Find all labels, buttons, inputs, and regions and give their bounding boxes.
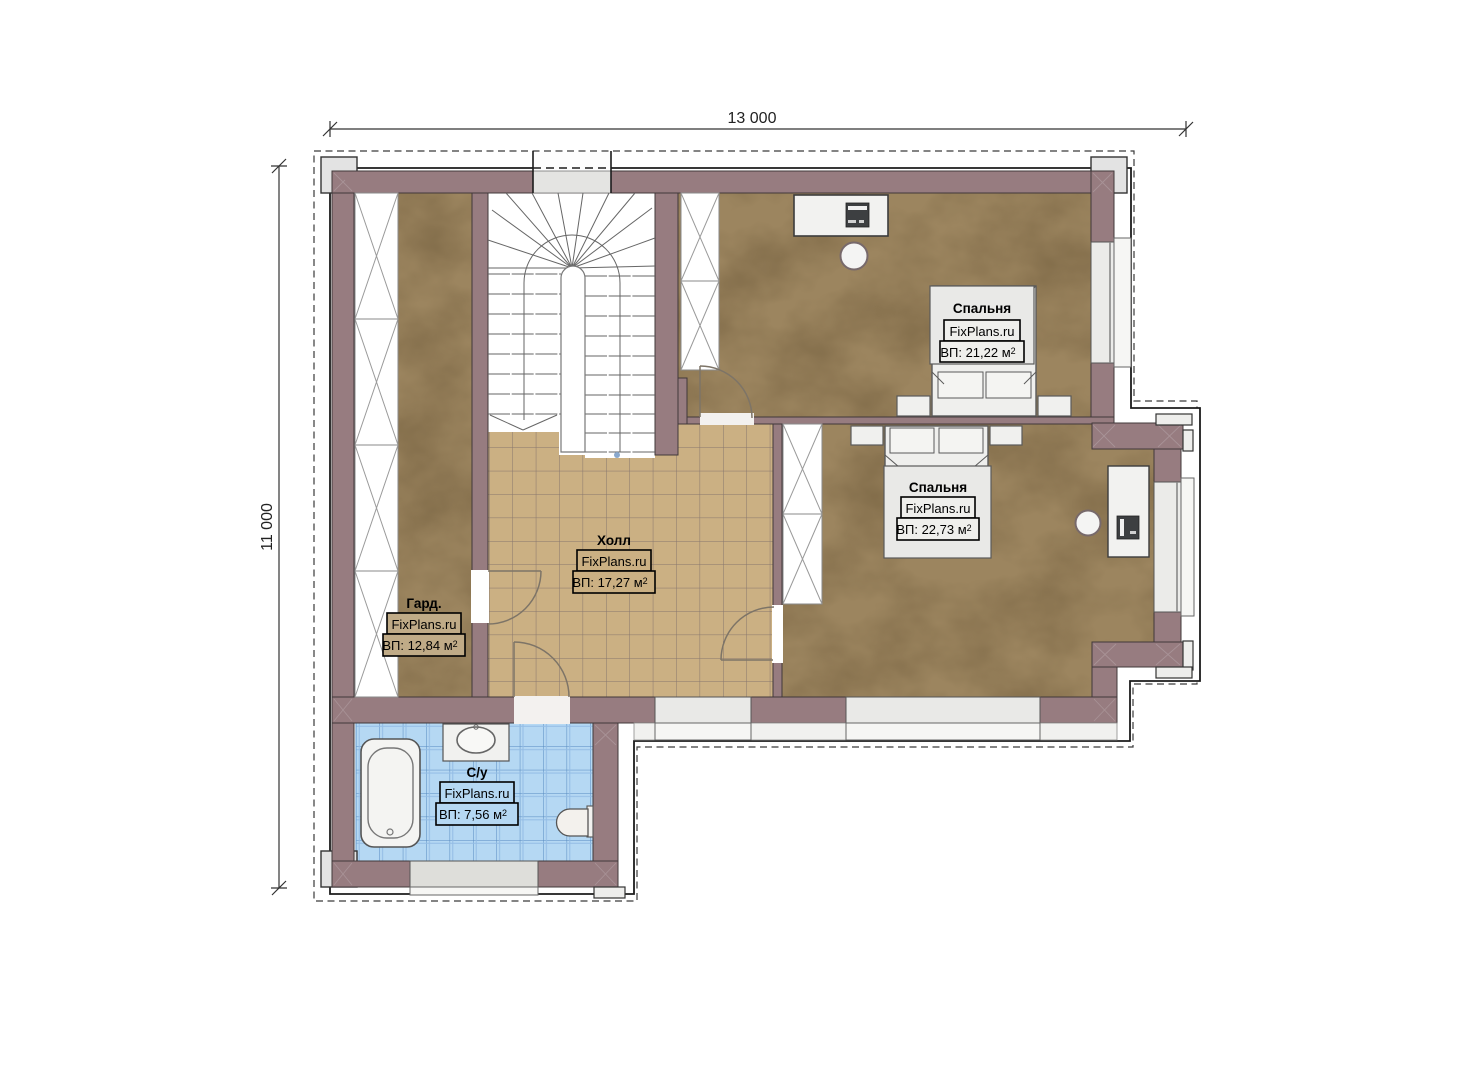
svg-text:Спальня: Спальня: [909, 480, 967, 495]
svg-text:Спальня: Спальня: [953, 301, 1011, 316]
svg-text:ВП: 21,22 м2: ВП: 21,22 м2: [940, 345, 1015, 360]
svg-text:ВП: 22,73 м2: ВП: 22,73 м2: [896, 522, 971, 537]
svg-text:11 000: 11 000: [259, 503, 276, 551]
svg-text:FixPlans.ru: FixPlans.ru: [444, 786, 509, 801]
svg-text:FixPlans.ru: FixPlans.ru: [905, 501, 970, 516]
svg-text:ВП: 17,27 м2: ВП: 17,27 м2: [572, 575, 647, 590]
svg-text:FixPlans.ru: FixPlans.ru: [391, 617, 456, 632]
svg-text:ВП: 7,56 м2: ВП: 7,56 м2: [439, 807, 507, 822]
svg-text:ВП: 12,84 м2: ВП: 12,84 м2: [382, 638, 457, 653]
svg-text:Холл: Холл: [597, 533, 631, 548]
svg-text:FixPlans.ru: FixPlans.ru: [581, 554, 646, 569]
svg-text:FixPlans.ru: FixPlans.ru: [949, 324, 1014, 339]
svg-text:13 000: 13 000: [728, 110, 777, 127]
svg-text:С/у: С/у: [466, 765, 488, 780]
svg-text:Гард.: Гард.: [406, 596, 441, 611]
